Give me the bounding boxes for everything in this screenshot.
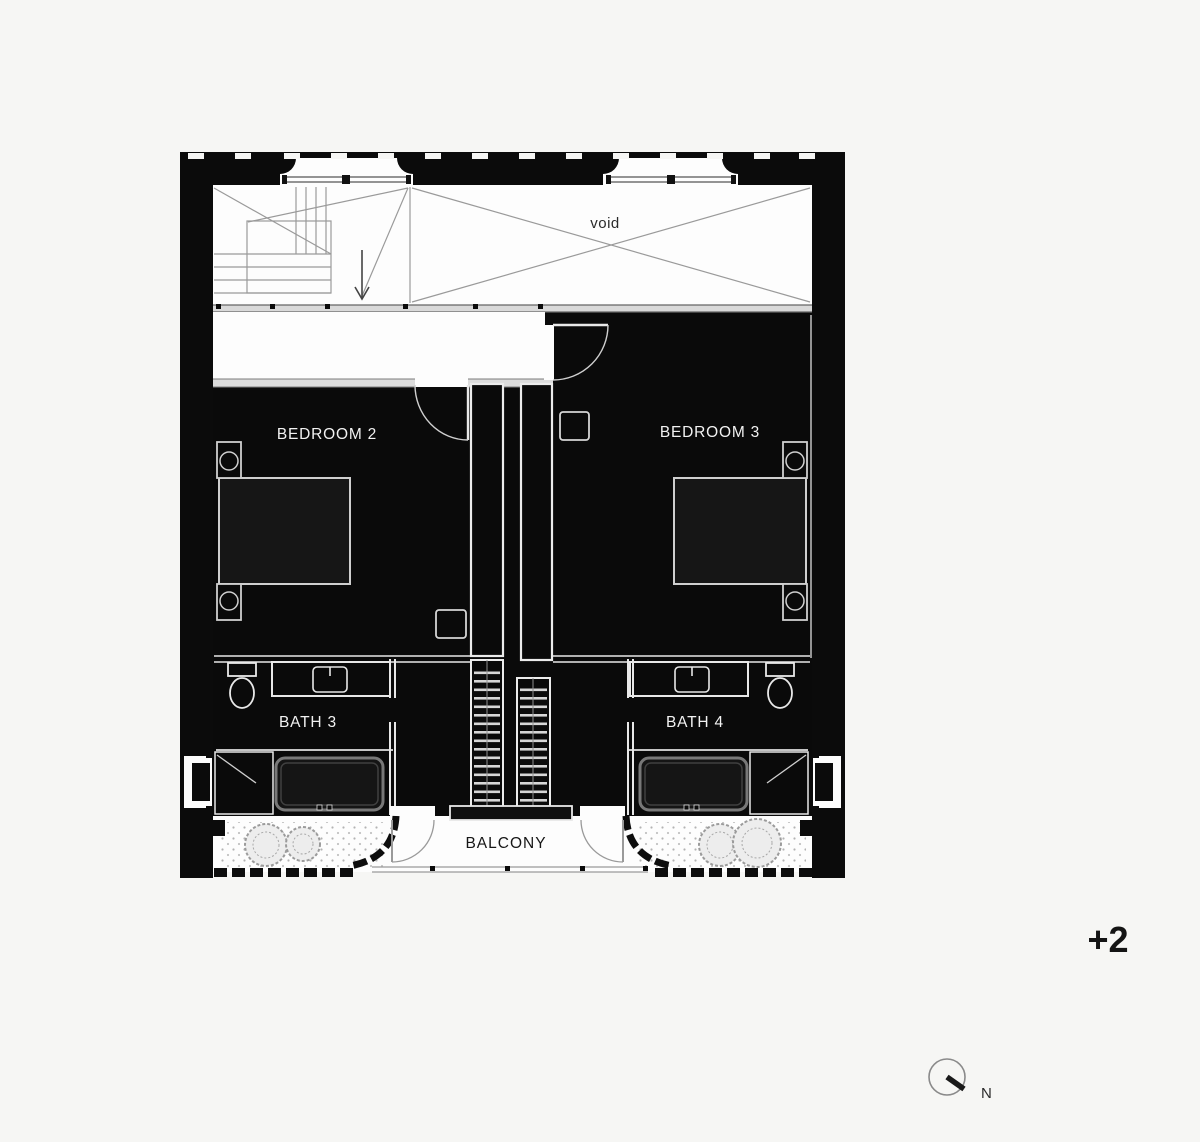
bath4-bathtub — [640, 758, 747, 810]
top-window-right — [603, 158, 738, 185]
tree-symbol — [733, 819, 781, 867]
tree-symbol — [245, 824, 287, 866]
tub-faucet — [317, 805, 322, 810]
left-wall-window — [184, 751, 213, 813]
tub-faucet — [327, 805, 332, 810]
top-window-left — [280, 158, 413, 185]
balcony: BALCONY — [213, 806, 812, 877]
shaft-ladder-left — [471, 660, 503, 810]
bedroom2-label: BEDROOM 2 — [277, 426, 377, 443]
balcony-threshold — [450, 806, 572, 820]
bedroom3-label: BEDROOM 3 — [660, 424, 760, 441]
bedroom3-door-opening — [544, 325, 554, 380]
landing-railing — [213, 304, 812, 312]
bath3-label: BATH 3 — [279, 714, 337, 731]
void-label: void — [590, 215, 620, 232]
bedroom2-door-opening — [415, 376, 468, 387]
tree-symbol — [286, 827, 320, 861]
floor-plan-sheet: void BEDROOM 2 — [0, 0, 1200, 1142]
bath4-label: BATH 4 — [666, 714, 724, 731]
shaft-ladder-right — [517, 678, 550, 810]
north-compass: N — [929, 1059, 992, 1102]
bath3-bathtub — [276, 758, 383, 810]
tub-faucet — [684, 805, 689, 810]
level-badge: +2 — [1087, 919, 1128, 960]
tub-faucet — [694, 805, 699, 810]
north-label: N — [981, 1085, 992, 1102]
compass-needle-icon — [947, 1077, 964, 1089]
floor-plan-drawing: void BEDROOM 2 — [0, 0, 1200, 1142]
right-wall-window — [812, 751, 841, 813]
hallway — [213, 312, 545, 379]
upper-strip — [213, 185, 812, 305]
balcony-label: BALCONY — [465, 835, 546, 852]
